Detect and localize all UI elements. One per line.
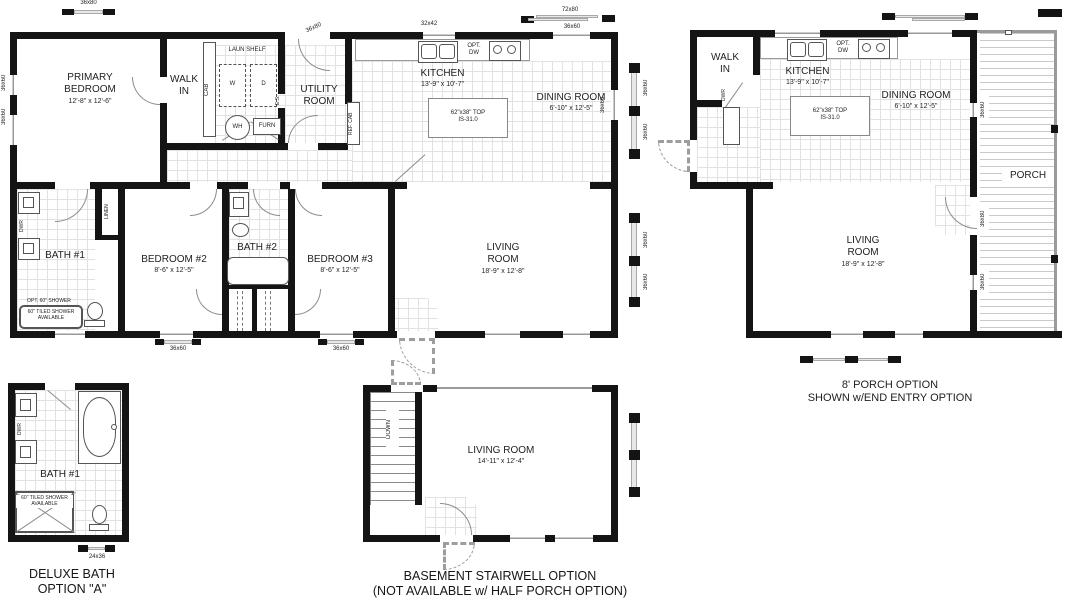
wall <box>423 385 437 392</box>
schedule-cap <box>800 356 813 363</box>
wall <box>415 392 422 505</box>
schedule-cap <box>629 149 640 159</box>
ref-cab-label: REF. CAB <box>348 104 359 144</box>
door-swing <box>658 140 690 172</box>
schedule-cap <box>965 13 978 20</box>
schedule-bar <box>912 18 965 21</box>
wall <box>367 385 391 392</box>
door-swing <box>190 189 217 216</box>
wall <box>10 95 17 115</box>
schedule-bar <box>858 358 888 361</box>
schedule-bar <box>74 10 103 14</box>
schedule-cap <box>629 213 640 223</box>
window-symbol <box>510 535 545 542</box>
porch-rail <box>977 30 1057 33</box>
schedule-bar <box>528 18 588 21</box>
living-room-label: LIVING ROOM <box>456 445 546 457</box>
dim-36x60: 36x60 <box>643 226 652 254</box>
window-symbol <box>908 30 952 37</box>
schedule-cap <box>629 297 640 307</box>
schedule-bar <box>88 547 105 550</box>
sink-basin <box>790 42 806 57</box>
wall <box>435 331 485 338</box>
window-symbol <box>10 75 17 95</box>
schedule-cap <box>629 106 640 116</box>
wall <box>363 535 440 542</box>
tub-faucet <box>111 424 117 430</box>
dim-36x60: 36x60 <box>980 96 989 124</box>
wall <box>970 30 977 103</box>
window-symbol <box>831 331 863 338</box>
dining-room-label: DINING ROOM <box>515 92 627 104</box>
window-symbol <box>423 32 455 39</box>
wall <box>330 32 423 39</box>
dim-36x60: 36x60 <box>643 118 652 146</box>
burner <box>876 43 885 52</box>
schedule-cap <box>602 15 615 22</box>
kitchen-size: 13'-9" x 10'-7" <box>765 79 850 87</box>
wall <box>10 32 285 39</box>
vanity-basin <box>233 197 244 209</box>
burner <box>507 45 516 54</box>
rail-post <box>1051 125 1058 133</box>
basement-caption: BASEMENT STAIRWELL OPTION (NOT AVAILABLE… <box>330 569 670 599</box>
dining-room-size: 6'-10" x 12'-5" <box>862 103 970 111</box>
wall <box>280 182 290 189</box>
kitchen-size: 13'-9" x 10'-7" <box>400 81 485 89</box>
toilet <box>232 223 249 237</box>
schedule-cap <box>105 545 115 552</box>
island-label: 62"x38" TOP IS-31.0 <box>430 110 506 124</box>
porch-option-plan: WALK IN DWR OPT. DW 62"x38" TOP IS-31.0 … <box>690 30 1062 338</box>
wall <box>252 287 257 331</box>
opt-dw-label: OPT. DW <box>460 43 488 57</box>
wall <box>318 143 348 150</box>
wall-line <box>437 387 594 389</box>
utility-room-label: UTILITY ROOM <box>290 84 348 108</box>
porch-label: PORCH <box>1002 170 1054 182</box>
dwr-label: DWR <box>17 420 28 438</box>
cabinet <box>723 107 740 145</box>
dwr-label: DWR <box>19 216 30 236</box>
window-symbol <box>563 331 590 338</box>
bath1-label: BATH #1 <box>32 250 98 262</box>
wall <box>690 30 697 140</box>
washer-label: W <box>219 81 246 88</box>
schedule-cap <box>78 545 88 552</box>
primary-bedroom-size: 12'-8" x 12'-6" <box>40 98 140 106</box>
dim-36x60: 36x60 <box>643 268 652 296</box>
wall <box>388 189 395 331</box>
living-room-size: 14'-11" x 12'-4" <box>456 458 546 466</box>
wall <box>10 145 17 338</box>
bedroom2-label: BEDROOM #2 <box>128 254 220 266</box>
schedule-cap <box>629 63 640 73</box>
closet-front <box>265 291 271 331</box>
vanity-basin <box>20 399 31 411</box>
dim-36x60: 36x60 <box>1 68 10 98</box>
window-symbol <box>970 103 977 117</box>
vanity-basin <box>20 446 31 458</box>
wall <box>160 143 288 150</box>
window-symbol <box>320 331 353 338</box>
laun-shelf-label: LAUN SHELF <box>213 47 281 54</box>
dim-36x60: 36x60 <box>1 100 10 134</box>
wall <box>322 182 407 189</box>
porch-option-caption: 8' PORCH OPTION SHOWN w/END ENTRY OPTION <box>780 379 1000 405</box>
schedule-cap <box>103 9 115 15</box>
schedule-cap <box>882 13 895 20</box>
door-swing <box>295 289 321 315</box>
dim-36x60: 36x60 <box>643 74 652 102</box>
rail-post <box>1005 30 1012 35</box>
dwr-label: DWR <box>721 85 732 105</box>
deluxe-bath-caption: DELUXE BATH OPTION "A" <box>2 567 142 597</box>
wall <box>690 30 775 37</box>
dining-room-label: DINING ROOM <box>862 90 970 102</box>
dim-36x60: 36x60 <box>550 24 594 31</box>
sink-basin <box>439 44 455 59</box>
wall <box>455 32 553 39</box>
wall <box>10 32 17 75</box>
dim-36x80: 36x80 <box>62 0 115 7</box>
wall <box>697 100 722 107</box>
wall <box>746 189 753 338</box>
wall <box>690 182 773 189</box>
schedule-cap <box>355 339 364 345</box>
primary-bedroom-label: PRIMARY BEDROOM <box>40 72 140 96</box>
wall <box>227 285 289 289</box>
toilet <box>92 505 107 524</box>
window-symbol <box>485 331 520 338</box>
tiled-shower-label: 60" TILED SHOWER AVAILABLE <box>16 495 73 508</box>
island-label: 62"x38" TOP IS-31.0 <box>792 108 868 122</box>
window-symbol <box>10 115 17 145</box>
dim-72x80: 72x80 <box>548 7 592 14</box>
dim-32x42: 32x42 <box>412 21 446 28</box>
wall <box>520 331 563 338</box>
wall <box>611 385 618 542</box>
wall <box>353 331 397 338</box>
wall <box>970 290 977 338</box>
wall <box>122 383 129 542</box>
bedroom3-label: BEDROOM #3 <box>295 254 385 266</box>
sink-basin <box>421 44 437 59</box>
down-label: DOWN <box>386 410 399 450</box>
vanity-basin <box>23 197 34 208</box>
closet-front <box>237 291 243 331</box>
wall <box>217 182 248 189</box>
schedule-cap <box>1038 9 1062 17</box>
schedule-cap <box>845 356 858 363</box>
schedule-bar <box>327 340 355 344</box>
wall <box>95 189 102 239</box>
window-symbol <box>555 535 593 542</box>
toilet-tank <box>89 524 109 531</box>
cab-label: CAB <box>204 70 215 110</box>
schedule-cap <box>318 339 327 345</box>
main-floor-plan: LAUN SHELF W D CAB E.S. WH FURN REF. CAB… <box>10 32 618 338</box>
wall <box>970 235 977 275</box>
deluxe-bath-plan: DWR BATH #1 60" TILED SHOWER AVAILABLE <box>8 383 132 542</box>
wall <box>970 117 977 197</box>
living-room-size: 18'-9" x 12'-8" <box>823 261 903 269</box>
burner <box>493 45 502 54</box>
schedule-cap <box>629 256 640 266</box>
window-symbol <box>160 331 193 338</box>
schedule-cap <box>62 9 74 15</box>
wall <box>746 331 831 338</box>
wall <box>977 331 1062 338</box>
wall <box>590 182 618 189</box>
dim-36x60: 36x60 <box>157 346 199 353</box>
window-symbol <box>775 30 820 37</box>
wall <box>863 331 895 338</box>
wall <box>593 535 618 542</box>
es-label: E.S. <box>275 90 285 110</box>
sink-basin <box>808 42 824 57</box>
wall <box>545 535 555 542</box>
wall <box>75 383 129 390</box>
floor-plan-sheet: LAUN SHELF W D CAB E.S. WH FURN REF. CAB… <box>0 0 1069 600</box>
wall <box>118 189 125 331</box>
living-room-size: 18'-9" x 12'-8" <box>463 268 543 276</box>
wall <box>8 383 15 542</box>
wall <box>473 535 510 542</box>
wall <box>611 120 618 338</box>
toilet <box>87 302 103 320</box>
linen-label: LINEN <box>104 192 115 232</box>
door-swing <box>443 542 475 570</box>
dim-36x60: 36x60 <box>980 268 989 296</box>
kitchen-label: KITCHEN <box>765 66 850 78</box>
wall <box>753 37 760 75</box>
bedroom2-size: 8'-6" x 12'-5" <box>128 267 220 275</box>
dryer-label: D <box>250 81 277 88</box>
tile-floor <box>388 298 438 331</box>
wall <box>160 39 167 77</box>
porch-deck <box>980 33 1054 331</box>
wall <box>923 331 977 338</box>
porch-rail <box>1054 33 1057 331</box>
window-symbol <box>55 331 85 338</box>
walk-in-label: WALK IN <box>165 74 203 98</box>
opt-shower-label: OPT. 60" SHOWER <box>16 298 82 304</box>
door-swing <box>196 289 222 315</box>
opt-dw-label: OPT. DW <box>829 41 857 55</box>
living-room-label: LIVING ROOM <box>463 242 543 266</box>
living-room-label: LIVING ROOM <box>823 235 903 259</box>
schedule-cap <box>629 450 640 460</box>
kitchen-label: KITCHEN <box>400 68 485 80</box>
dining-room-size: 6'-10" x 12'-5" <box>515 105 627 113</box>
window-symbol <box>970 275 977 290</box>
rail-post <box>1051 255 1058 263</box>
toilet-tank <box>84 320 105 327</box>
tile-floor <box>167 150 352 182</box>
wall <box>10 182 55 189</box>
door-swing <box>295 189 322 216</box>
wall <box>288 189 295 331</box>
wall <box>363 385 370 542</box>
wall <box>193 331 320 338</box>
schedule-cap <box>629 413 640 423</box>
wall <box>820 30 908 37</box>
wall <box>611 32 618 90</box>
wall <box>85 331 160 338</box>
furn-label: FURN <box>253 123 281 130</box>
window-symbol <box>895 331 923 338</box>
bath1-label: BATH #1 <box>28 469 92 481</box>
burner <box>862 43 871 52</box>
schedule-cap <box>629 487 640 497</box>
bath2-label: BATH #2 <box>224 242 290 254</box>
schedule-cap <box>888 356 901 363</box>
bathtub <box>227 257 289 285</box>
schedule-bar <box>813 358 845 361</box>
basement-stairwell-plan: DOWN LIVING ROOM 14'-11" x 12'-4" <box>363 385 618 542</box>
dim-36x60-right-wall: 36x60 <box>600 90 609 120</box>
schedule-cap <box>192 339 201 345</box>
window-symbol <box>553 32 590 39</box>
schedule-bar <box>164 340 192 344</box>
dim-36x60: 36x60 <box>320 346 362 353</box>
tiled-shower-label: 60" TILED SHOWER AVAILABLE <box>20 309 82 322</box>
walk-in-label: WALK IN <box>702 52 748 76</box>
wall <box>90 182 190 189</box>
dim-24x36: 24x36 <box>72 554 122 561</box>
wall <box>8 535 129 542</box>
schedule-cap <box>155 339 164 345</box>
wh-label: WH <box>225 124 250 131</box>
dim-36x80: 36x80 <box>980 203 989 235</box>
bedroom3-size: 8'-6" x 12'-5" <box>295 267 385 275</box>
